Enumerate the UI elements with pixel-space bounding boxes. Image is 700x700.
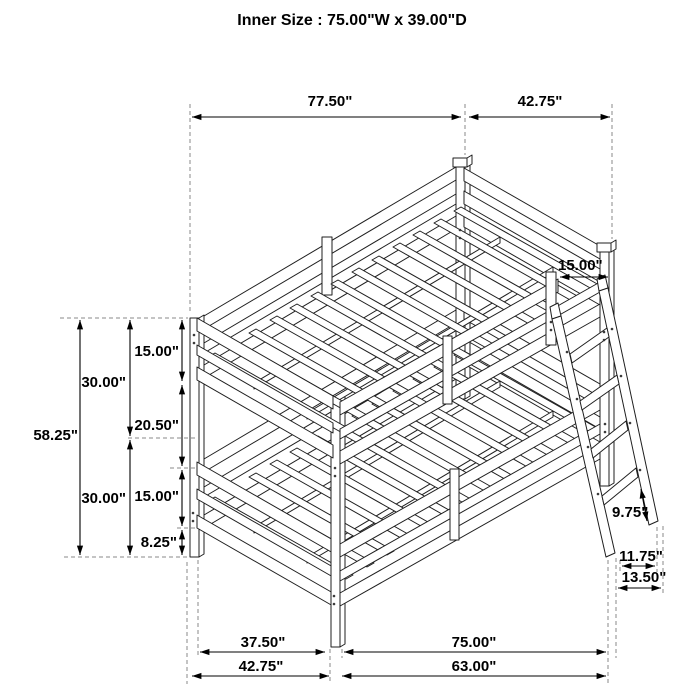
title-inner-size: Inner Size : 75.00"W x 39.00"D <box>237 12 467 29</box>
screw-dot <box>597 493 600 496</box>
screw-dot <box>192 512 195 515</box>
guard-mid-post <box>443 336 452 404</box>
dim-floor-foot-inner: 37.50" <box>241 634 286 651</box>
dim-ladder-foot-inner: 11.75" <box>619 548 663 565</box>
screw-dot <box>604 423 607 426</box>
dim-top-length: 77.50" <box>308 93 353 110</box>
screw-dot <box>193 334 196 337</box>
screw-dot <box>566 351 569 354</box>
screw-dot <box>603 339 606 342</box>
dim-ladder-foot-outer: 13.50" <box>622 569 667 586</box>
lower-slat <box>290 448 435 530</box>
screw-dot <box>639 469 642 472</box>
screw-dot <box>620 375 623 378</box>
screw-dot <box>333 603 336 606</box>
screw-dot <box>333 595 336 598</box>
screw-dot <box>334 467 337 470</box>
dim-rung-spacing: 9.75" <box>612 504 648 521</box>
screw-dot <box>603 331 606 334</box>
screw-dot <box>587 446 590 449</box>
dim-top-depth: 42.75" <box>518 93 563 110</box>
screw-dot <box>576 398 579 401</box>
screw-dot <box>611 328 614 331</box>
dim-floor-side-inner: 75.00" <box>452 634 497 651</box>
dim-ladder-opening: 15.00" <box>558 257 603 274</box>
screw-dot <box>334 475 337 478</box>
screw-dot <box>192 520 195 523</box>
dim-floor-side-span: 63.00" <box>452 658 497 675</box>
screw-dot <box>459 229 462 232</box>
bunk-bed-dimension-diagram: Inner Size : 75.00"W x 39.00"D 77.50" 42… <box>0 0 700 700</box>
dim-floor-foot-total: 42.75" <box>239 658 284 675</box>
screw-dot <box>550 321 553 324</box>
screw-dot <box>459 237 462 240</box>
dim-floor-clearance: 8.25" <box>141 534 177 551</box>
screw-dot <box>193 342 196 345</box>
lower-slat <box>352 412 497 494</box>
diagram-canvas: Inner Size : 75.00"W x 39.00"D 77.50" 42… <box>0 0 700 700</box>
screw-dot <box>550 329 553 332</box>
dim-bunk-gap: 20.50" <box>134 417 179 434</box>
bed-drawing <box>190 155 658 647</box>
dim-total-height: 58.25" <box>33 427 78 444</box>
dim-upper-section: 30.00" <box>81 374 126 391</box>
dim-lower-section: 30.00" <box>81 490 126 507</box>
screw-dot <box>629 422 632 425</box>
dim-lower-rail-depth: 15.00" <box>134 488 179 505</box>
screw-dot <box>604 431 607 434</box>
dim-upper-rail-depth: 15.00" <box>134 343 179 360</box>
